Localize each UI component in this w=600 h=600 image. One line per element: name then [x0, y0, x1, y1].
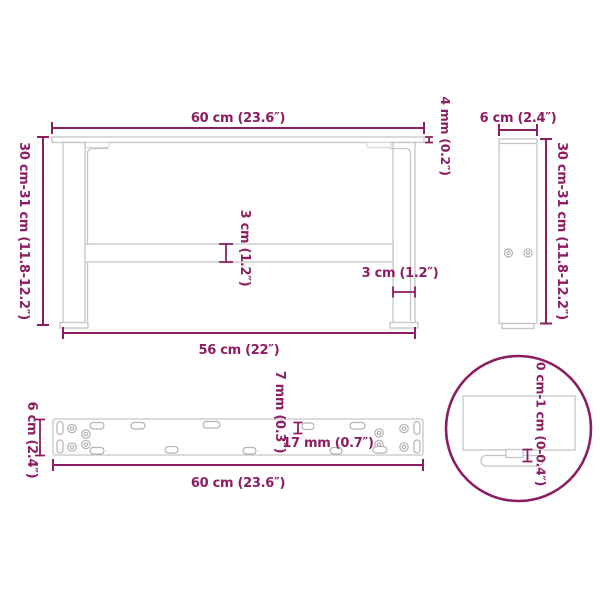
plate-view: 6 cm (2.4″) 7 mm (0.3″) 17 mm (0.7″) 60 … [24, 371, 423, 491]
slot-length-label: 17 mm (0.7″) [282, 436, 373, 451]
mount-slot [203, 422, 220, 429]
screw-hole-center [377, 443, 380, 446]
screw-hole-center [507, 251, 510, 254]
plate-width-label: 6 cm (2.4″) [24, 402, 39, 479]
front-height-dim-line [37, 137, 49, 325]
side-view: 6 cm (2.4″) 30 cm-31 cm (11.8-12.2″) [480, 111, 569, 329]
screw-hole-center [84, 443, 87, 446]
edge-slot [414, 422, 420, 435]
mount-slot [131, 423, 145, 430]
side-depth-label: 6 cm (2.4″) [480, 111, 557, 126]
edge-slot [57, 440, 63, 453]
screw-hole-center [402, 427, 405, 430]
left-leg [63, 143, 85, 324]
screw-hole-center [70, 427, 73, 430]
plate-thickness-marker [425, 137, 433, 143]
plate-thickness-label: 4 mm (0.2″) [438, 96, 453, 175]
dimension-diagram: 60 cm (23.6″) 4 mm (0.2″) 30 cm-31 cm (1… [0, 0, 600, 600]
front-view: 60 cm (23.6″) 4 mm (0.2″) 30 cm-31 cm (1… [16, 96, 453, 358]
screw-hole-center [377, 431, 380, 434]
edge-slot [414, 440, 420, 453]
diagram-canvas: 60 cm (23.6″) 4 mm (0.2″) 30 cm-31 cm (1… [0, 0, 600, 600]
screw-hole-center [84, 432, 87, 435]
adjuster-stub [506, 450, 523, 458]
left-foot [60, 323, 88, 329]
side-leg [499, 139, 537, 324]
leg-span-label: 56 cm (22″) [199, 343, 280, 358]
screw-hole-center [70, 445, 73, 448]
detail-leg-bottom [463, 396, 575, 450]
detail-view: 0 cm-1 cm (0-0.4″) [446, 356, 591, 501]
right-foot [390, 323, 418, 329]
side-height-label: 30 cm-31 cm (11.8-12.2″) [554, 142, 569, 320]
plate-length-dim-line [53, 459, 423, 471]
mount-slot [90, 448, 104, 455]
mount-slot [165, 447, 178, 454]
front-width-label: 60 cm (23.6″) [191, 111, 285, 126]
leg-width-label: 3 cm (1.2″) [362, 266, 439, 281]
edge-slot [57, 422, 63, 435]
mount-slot [350, 423, 365, 430]
mount-slot [243, 448, 256, 455]
adjust-range-label: 0 cm-1 cm (0-0.4″) [534, 362, 549, 486]
right-leg [393, 143, 415, 324]
mount-slot [373, 447, 387, 454]
top-mounting-plate [52, 137, 424, 143]
side-foot [502, 324, 534, 329]
plate-length-label: 60 cm (23.6″) [191, 476, 285, 491]
left-bracket-tab [85, 143, 109, 148]
side-height-dim-line [540, 139, 552, 324]
screw-hole-center [402, 445, 405, 448]
right-bracket-tab [367, 143, 391, 148]
screw-hole-center [526, 251, 529, 254]
leg-span-dim-line [63, 327, 415, 339]
left-leg-inner-fillet [88, 149, 109, 322]
front-height-label: 30 cm-31 cm (11.8-12.2″) [16, 142, 31, 320]
mount-slot [90, 423, 104, 430]
crossbar-thickness-label: 3 cm (1.2″) [237, 210, 252, 287]
mount-slot [302, 423, 314, 430]
